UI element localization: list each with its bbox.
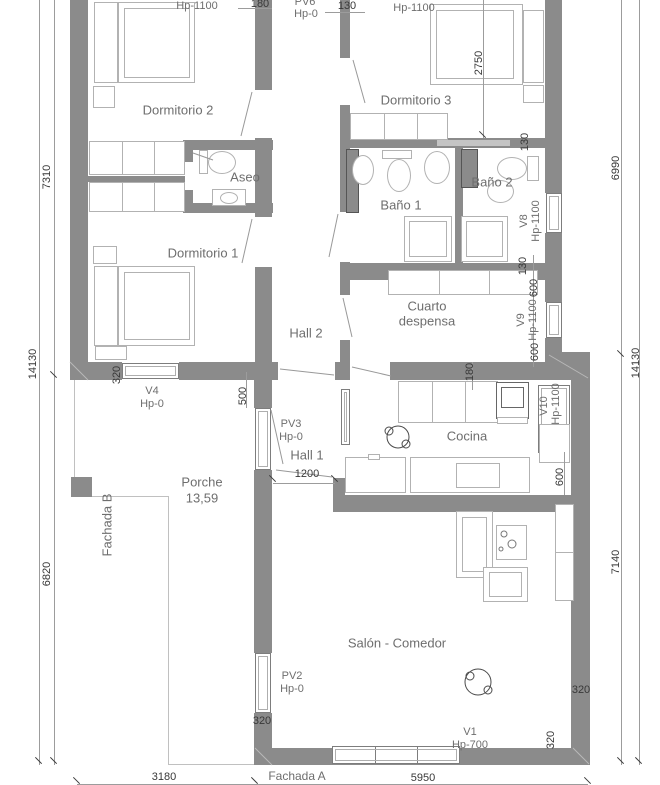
dim-6990: 6990 <box>610 156 622 180</box>
window-label-v4-hp: Hp-0 <box>140 398 164 410</box>
room-label-bano-1: Baño 1 <box>380 198 421 213</box>
dim-1200: 1200 <box>295 468 319 480</box>
door-label-pv6: PV6 <box>295 0 316 8</box>
window-label-v9-hp: Hp-1100 <box>527 299 539 340</box>
window-label-hp1100-dorm2: Hp-1100 <box>176 0 217 12</box>
dim-130-despensa: 130 <box>517 257 529 275</box>
window-label-v10: V10 <box>538 396 550 416</box>
dim-500: 500 <box>237 387 249 405</box>
dim-14130-left: 14130 <box>27 349 39 380</box>
window-label-v4: V4 <box>145 385 158 397</box>
room-label-dormitorio-2: Dormitorio 2 <box>143 103 214 118</box>
dim-320-salon-wall: 320 <box>572 684 590 696</box>
dim-7140: 7140 <box>610 550 622 574</box>
facade-b-label: Fachada B <box>100 494 115 557</box>
window-label-v8: V8 <box>518 214 530 227</box>
dim-line <box>54 0 55 765</box>
dim-320-v4: 320 <box>111 366 123 384</box>
dim-600-v9-bottom: 600 <box>529 343 541 361</box>
dim-7310: 7310 <box>41 165 53 189</box>
room-label-porche-area: 13,59 <box>186 491 219 506</box>
door-label-pv3-hp: Hp-0 <box>279 431 303 443</box>
dim-130-top: 130 <box>338 0 356 12</box>
dim-180-kitchen: 180 <box>464 363 476 381</box>
room-label-bano-2: Baño 2 <box>471 175 512 190</box>
dim-130-bath: 130 <box>519 133 531 151</box>
dim-line <box>621 0 622 765</box>
window-label-v10-hp: Hp-1100 <box>550 383 562 424</box>
room-label-dormitorio-1: Dormitorio 1 <box>168 246 239 261</box>
dim-2750: 2750 <box>473 51 485 75</box>
room-label-dormitorio-3: Dormitorio 3 <box>381 93 452 108</box>
floor-plan: Dormitorio 2 Aseo Dormitorio 1 Hall 2 Do… <box>0 0 660 785</box>
dim-line <box>273 483 335 484</box>
dim-3180: 3180 <box>152 771 176 783</box>
door-label-pv2: PV2 <box>282 670 303 682</box>
dim-6820: 6820 <box>41 562 53 586</box>
room-label-hall-2: Hall 2 <box>289 326 322 341</box>
dim-320-pv2: 320 <box>253 715 271 727</box>
facade-a-label: Fachada A <box>268 769 325 783</box>
dim-5950: 5950 <box>411 772 435 784</box>
dim-600-v9-top: 600 <box>528 279 540 297</box>
window-label-v9: V9 <box>515 313 527 326</box>
door-label-pv2-hp: Hp-0 <box>280 683 304 695</box>
dim-14130-right: 14130 <box>630 348 642 379</box>
window-label-hp1100-dorm3: Hp-1100 <box>393 2 434 14</box>
room-label-porche: Porche <box>181 475 222 490</box>
room-label-hall-1: Hall 1 <box>290 448 323 463</box>
door-label-pv6-hp: Hp-0 <box>294 8 318 20</box>
room-label-salon-comedor: Salón - Comedor <box>348 636 446 651</box>
room-label-cocina: Cocina <box>447 429 487 444</box>
room-label-cuarto-despensa: Cuarto <box>407 299 446 314</box>
dim-line <box>325 12 365 13</box>
door-label-pv3: PV3 <box>281 418 302 430</box>
dim-line <box>639 0 640 765</box>
window-label-v1: V1 <box>463 726 476 738</box>
dim-600-v10: 600 <box>554 468 566 486</box>
room-label-cuarto-despensa-2: despensa <box>399 314 455 329</box>
dim-320-salon-bottom: 320 <box>545 731 557 749</box>
window-label-v1-hp: Hp-700 <box>452 739 488 751</box>
dim-180-top: 180 <box>251 0 269 10</box>
dim-line <box>39 0 40 765</box>
window-label-v8-hp: Hp-1100 <box>530 200 542 241</box>
room-label-aseo: Aseo <box>230 170 260 185</box>
